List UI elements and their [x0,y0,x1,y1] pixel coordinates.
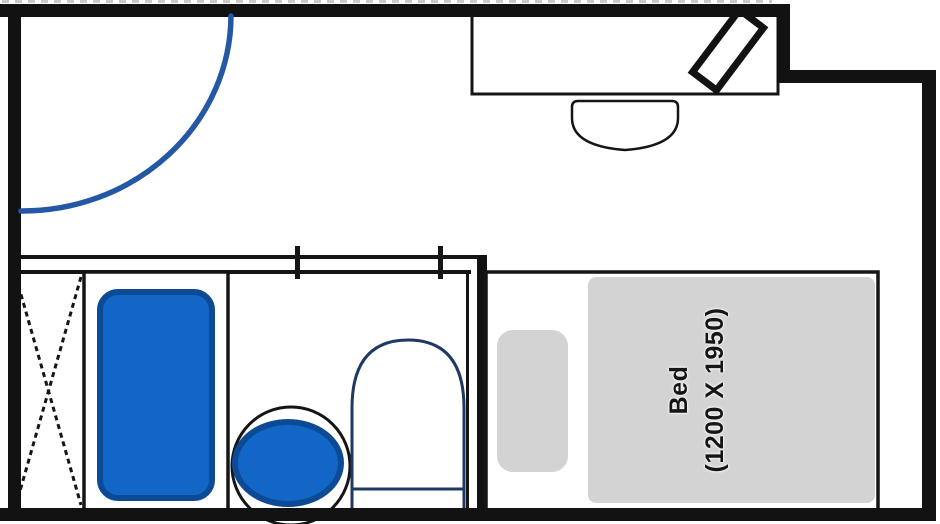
bed-label-name: Bed [661,308,697,473]
bathroom-door-jamb-tick-right [438,246,443,279]
toilet-bowl-outline [352,340,464,510]
washbasin [235,422,341,504]
desk-chair [572,101,678,150]
toilet [352,340,464,510]
entry-door-swing-arc [21,16,231,211]
floorplan: Bed (1200 X 1950) [0,0,940,524]
bed-label-dimensions: (1200 X 1950) [697,308,733,473]
wall-top [0,4,790,17]
wall-right [922,70,936,521]
pillow [497,330,568,472]
bathroom-door-jamb-tick-left [295,246,300,279]
wall-upper-right-horizontal [777,70,936,83]
wardrobe [16,277,81,505]
bed-label: Bed (1200 X 1950) [661,308,734,473]
bathroom-wall-upper-line [21,255,486,259]
wall-left [8,4,21,521]
wall-bottom [0,508,936,521]
wall-desk-stub [777,4,790,83]
floorplan-svg [0,0,940,524]
bathroom-right-wall-thin [466,271,469,510]
bathtub [100,292,212,498]
